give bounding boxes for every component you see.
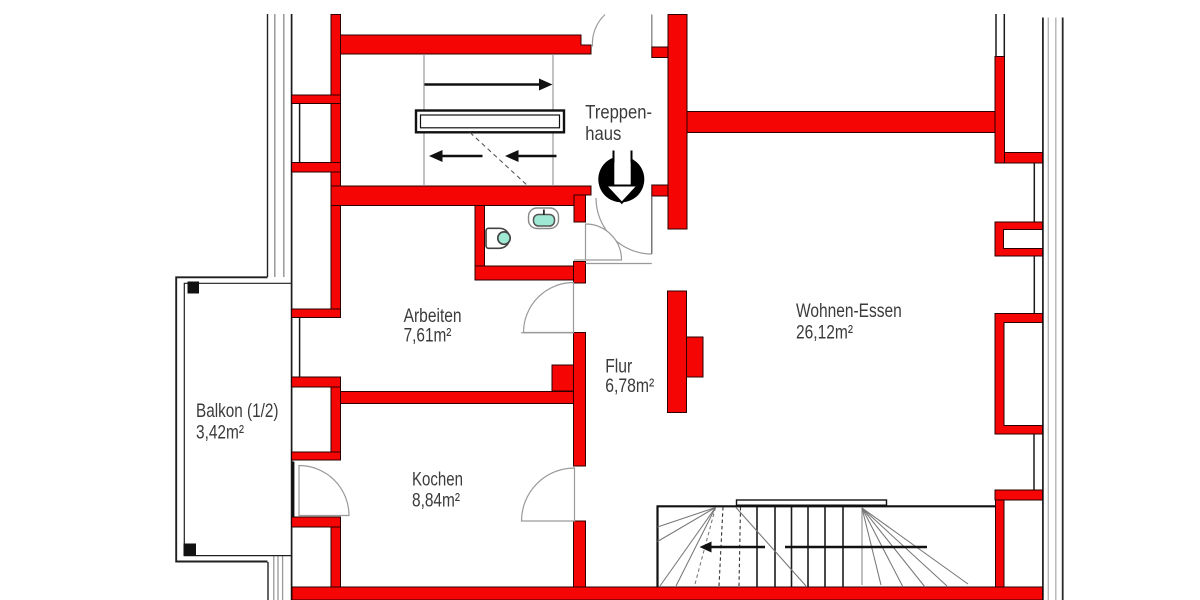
svg-text:26,12m²: 26,12m² bbox=[796, 322, 853, 344]
svg-text:Balkon (1/2): Balkon (1/2) bbox=[196, 400, 279, 422]
svg-text:7,61m²: 7,61m² bbox=[404, 325, 452, 347]
svg-text:3,42m²: 3,42m² bbox=[196, 422, 244, 444]
svg-text:Treppen-: Treppen- bbox=[585, 102, 652, 124]
svg-text:haus: haus bbox=[585, 123, 621, 145]
svg-text:Wohnen-Essen: Wohnen-Essen bbox=[796, 300, 902, 322]
svg-text:6,78m²: 6,78m² bbox=[605, 375, 654, 397]
svg-text:Kochen: Kochen bbox=[412, 469, 463, 491]
svg-text:8,84m²: 8,84m² bbox=[412, 490, 460, 512]
